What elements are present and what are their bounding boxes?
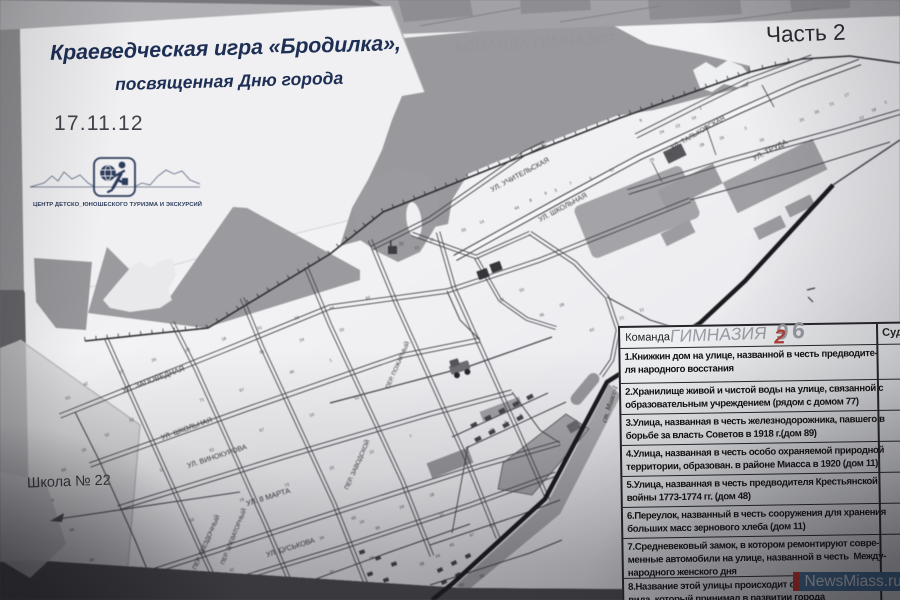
svg-text:22: 22 (399, 241, 404, 246)
